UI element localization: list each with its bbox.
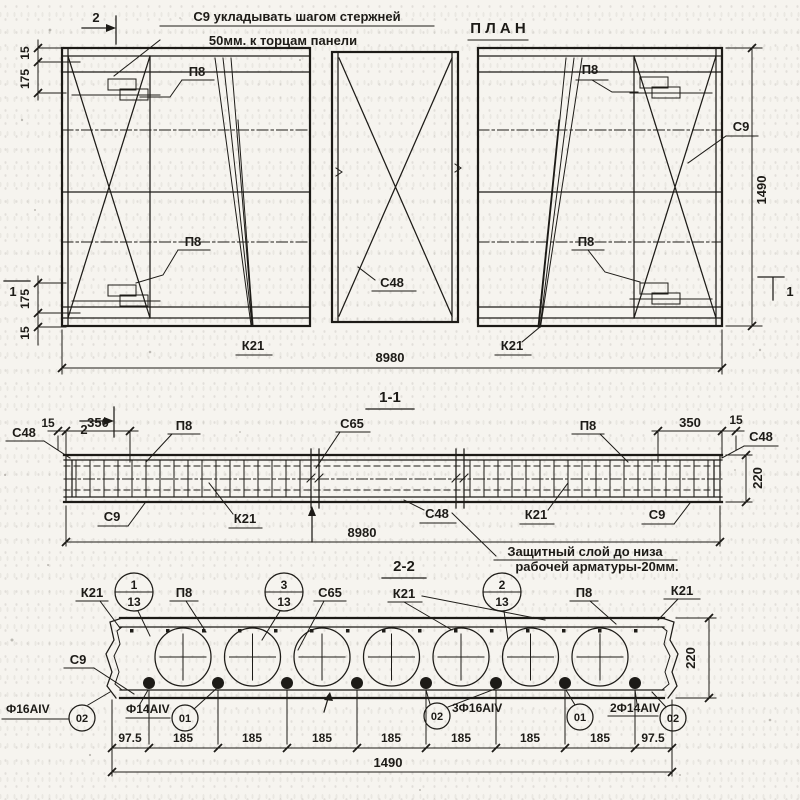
section-2-2: 2-2 Защитный слой до низа рабочей армату… [2, 513, 716, 776]
dim-8980-line [66, 506, 720, 546]
section-marker-1-left: 1 [9, 284, 16, 299]
dim-1490: 1490 [754, 176, 769, 205]
label-c9: С9 [733, 119, 750, 134]
dim-185: 185 [381, 731, 401, 745]
p8-leader [570, 601, 616, 624]
plan-title: П Л А Н [470, 20, 525, 37]
break-mark [336, 164, 461, 176]
left-end-profile [106, 618, 122, 698]
label-c9: С9 [649, 507, 666, 522]
dim-15: 15 [41, 416, 55, 430]
dim-220-line [726, 455, 752, 502]
dim-350: 350 [679, 415, 701, 430]
plan-dimensions: 15 175 175 15 1490 8980 2 2 1 1 [4, 10, 794, 437]
label-k21: К21 [242, 338, 264, 353]
label-c48: С48 [380, 275, 404, 290]
ball-num: 1 [131, 578, 138, 592]
ball-num: 2 [499, 578, 506, 592]
plan-right-panel: П8 П8 С9 [478, 48, 758, 327]
dim-97-5: 97.5 [641, 731, 665, 745]
k21-leader [658, 599, 700, 620]
dim-15: 15 [18, 46, 32, 60]
cover-note-line2: рабочей арматуры-20мм. [515, 559, 678, 574]
plan-middle-panel: С48 [332, 52, 461, 322]
dim-350-left [48, 431, 138, 462]
lifting-hook [108, 79, 136, 90]
plan-note-line1: С9 укладывать шагом стержней [193, 9, 400, 24]
section2-callouts: К21 1 13 П8 3 13 С65 К21 2 13 П8 К21 [76, 573, 700, 650]
panel-outline [62, 48, 310, 326]
dim-220: 220 [683, 647, 698, 669]
label-c9: С9 [104, 509, 121, 524]
pos-02: 02 [667, 713, 679, 725]
dim-350-right [652, 431, 744, 462]
panel-cross-section: С9 [64, 618, 678, 698]
drawing-sheet: С9 укладывать шагом стержней 50мм. к тор… [0, 0, 800, 800]
dim-185: 185 [312, 731, 332, 745]
label-c65: С65 [318, 585, 342, 600]
label-k21: К21 [525, 507, 547, 522]
drawing-canvas: С9 укладывать шагом стержней 50мм. к тор… [0, 0, 800, 800]
label-c48: С48 [12, 425, 36, 440]
dim-8980: 8980 [376, 350, 405, 365]
dim-185: 185 [242, 731, 262, 745]
ball-qty: 13 [277, 595, 291, 609]
plan-note-leader [114, 40, 160, 76]
right-end-profile-inner [662, 627, 670, 690]
plan-left-panel: П8 П8 [62, 48, 310, 326]
ball-qty: 13 [127, 595, 141, 609]
mesh-bars [478, 72, 722, 307]
panel-inner-border [62, 48, 310, 326]
right-end-profile [662, 618, 678, 698]
panel-inner-border [478, 48, 722, 326]
pos-02: 02 [76, 713, 88, 725]
p8-leader [572, 250, 640, 282]
label-p8: П8 [578, 234, 595, 249]
dim-185: 185 [520, 731, 540, 745]
k21-leader [76, 601, 120, 628]
dim-8980: 8980 [348, 525, 377, 540]
section-marker-1-right: 1 [786, 284, 793, 299]
label-p8: П8 [176, 418, 193, 433]
p8-leader [572, 434, 628, 462]
lifting-hook [108, 285, 136, 296]
pos-01: 01 [574, 712, 586, 724]
mesh-bars-dashdot [62, 130, 310, 242]
panel-outline [478, 48, 722, 326]
dim-220: 220 [750, 467, 765, 489]
lifting-hook [640, 77, 668, 88]
label-c48: С48 [425, 506, 449, 521]
label-p8: П8 [580, 418, 597, 433]
label-k21: К21 [393, 586, 415, 601]
label-k21: К21 [81, 585, 103, 600]
section-marker-2-top: 2 [92, 10, 99, 25]
dim-175: 175 [18, 289, 32, 309]
left-end-profile-inner [114, 627, 122, 690]
ball-num: 3 [281, 578, 288, 592]
marker-arrow [106, 24, 116, 32]
rebar-f16-label: Ф16АIV [6, 702, 50, 716]
dim-185: 185 [451, 731, 471, 745]
k21-leader [388, 596, 545, 630]
ball-qty: 13 [495, 595, 509, 609]
marker-line [758, 277, 784, 300]
plan-note-line2: 50мм. к торцам панели [209, 33, 357, 48]
label-p8: П8 [189, 64, 206, 79]
beam-dashed-bars [64, 466, 722, 490]
label-k21: К21 [234, 511, 256, 526]
mesh-bars-dashdot [478, 130, 722, 242]
label-p8: П8 [176, 585, 193, 600]
section-1-1: 1-1 С48 15 350 П8 С65 П8 350 15 С48 [6, 389, 778, 546]
label-c48: С48 [749, 429, 773, 444]
label-k21: К21 [501, 338, 523, 353]
break-arrow-head [308, 506, 316, 516]
dim-1490: 1490 [374, 755, 403, 770]
rebar-f14-label: Ф14АIV [126, 702, 170, 716]
c65-leader [316, 432, 370, 468]
p8-leader [140, 80, 214, 97]
section2-dimensions: 97.5 185 185 185 185 185 185 185 97.5 14… [108, 614, 716, 776]
dim-350: 350 [87, 415, 109, 430]
pos-01: 01 [179, 713, 191, 725]
dim-185: 185 [173, 731, 193, 745]
dim-185: 185 [590, 731, 610, 745]
dim-chain-left-bottom [38, 276, 80, 345]
label-p8: П8 [185, 234, 202, 249]
label-c9: С9 [70, 652, 87, 667]
section1-title: 1-1 [379, 389, 401, 406]
dim-15: 15 [729, 413, 743, 427]
dim-97-5: 97.5 [118, 731, 142, 745]
section2-title: 2-2 [393, 558, 415, 575]
c48-leader [6, 441, 70, 458]
pos-02: 02 [431, 711, 443, 723]
label-c65: С65 [340, 416, 364, 431]
dim-175: 175 [18, 69, 32, 89]
label-k21: К21 [671, 583, 693, 598]
mesh-bars [62, 72, 310, 307]
p8-leader [146, 434, 200, 462]
rebar-callouts: Ф16АIV 02 Ф14АIV 01 02 3Ф16АIV 01 2Ф14АI… [2, 689, 686, 731]
cover-note-line1: Защитный слой до низа [507, 544, 663, 559]
p8-leader [136, 250, 210, 283]
break-mark [307, 474, 468, 482]
label-p8: П8 [582, 62, 599, 77]
diagonal-brace [634, 56, 716, 318]
pointer-arrow [324, 692, 333, 701]
p8-leader [576, 80, 638, 92]
dim-15: 15 [18, 326, 32, 340]
plan-view: С9 укладывать шагом стержней 50мм. к тор… [4, 9, 794, 437]
label-p8: П8 [576, 585, 593, 600]
